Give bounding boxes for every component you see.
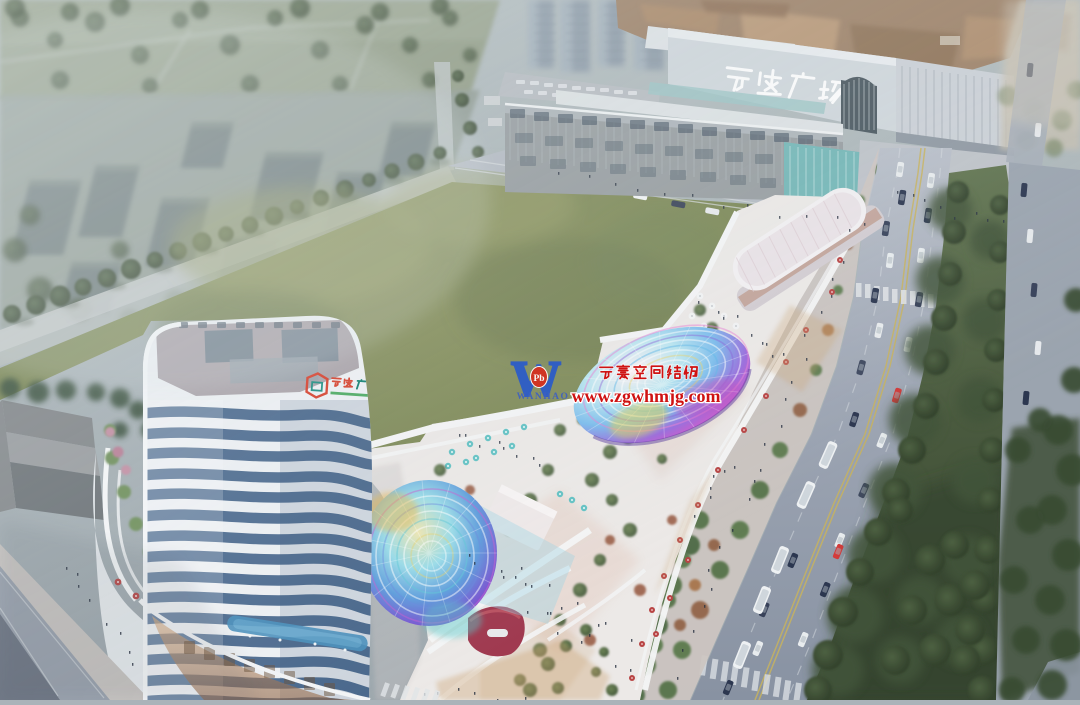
- svg-text:Pb: Pb: [533, 374, 544, 384]
- svg-text:WANHAO: WANHAO: [517, 392, 570, 402]
- svg-text:www.zgwhmjg.com: www.zgwhmjg.com: [572, 386, 721, 406]
